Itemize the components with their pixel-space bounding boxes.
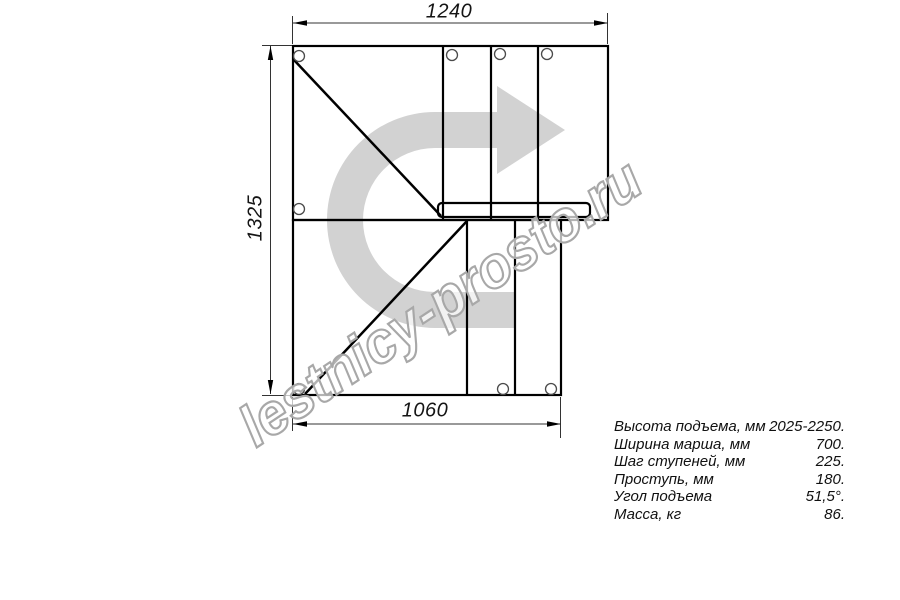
spec-row: Масса, кг 86. xyxy=(614,506,845,524)
stair-drawing-canvas: lestnicy-prosto.ru 1240 1325 1060 Высота… xyxy=(0,0,900,600)
dimension-label-top-width: 1240 xyxy=(426,1,473,24)
mounting-hole-icon xyxy=(495,49,506,60)
spec-value: 51,5°. xyxy=(806,488,845,506)
mounting-hole-icon xyxy=(294,51,305,62)
spec-value: 180. xyxy=(816,471,845,489)
arrowhead-icon xyxy=(547,421,561,426)
dimension-label-bottom-width: 1060 xyxy=(402,400,449,423)
spec-table: Высота подъема, мм 2025-2250. Ширина мар… xyxy=(614,418,845,523)
spec-label: Масса, кг xyxy=(614,506,681,524)
spec-label: Высота подъема, мм xyxy=(614,418,766,436)
mounting-hole-icon xyxy=(447,50,458,61)
spec-label: Угол подъема xyxy=(614,488,712,506)
spec-row: Шаг ступеней, мм 225. xyxy=(614,453,845,471)
mounting-hole-icon xyxy=(498,384,509,395)
spec-row: Проступь, мм 180. xyxy=(614,471,845,489)
spec-row: Высота подъема, мм 2025-2250. xyxy=(614,418,845,436)
mounting-hole-icon xyxy=(542,49,553,60)
spec-row: Угол подъема 51,5°. xyxy=(614,488,845,506)
spec-label: Ширина марша, мм xyxy=(614,436,750,454)
spec-value: 2025-2250. xyxy=(769,418,845,436)
spec-label: Шаг ступеней, мм xyxy=(614,453,745,471)
spec-value: 225. xyxy=(816,453,845,471)
spec-value: 700. xyxy=(816,436,845,454)
spec-row: Ширина марша, мм 700. xyxy=(614,436,845,454)
spec-label: Проступь, мм xyxy=(614,471,714,489)
spec-value: 86. xyxy=(824,506,845,524)
arrowhead-icon xyxy=(268,46,273,60)
arrowhead-icon xyxy=(594,20,608,25)
mounting-hole-icon xyxy=(546,384,557,395)
arrowhead-icon xyxy=(293,20,307,25)
dimension-label-left-height: 1325 xyxy=(245,195,268,242)
mounting-hole-icon xyxy=(294,204,305,215)
